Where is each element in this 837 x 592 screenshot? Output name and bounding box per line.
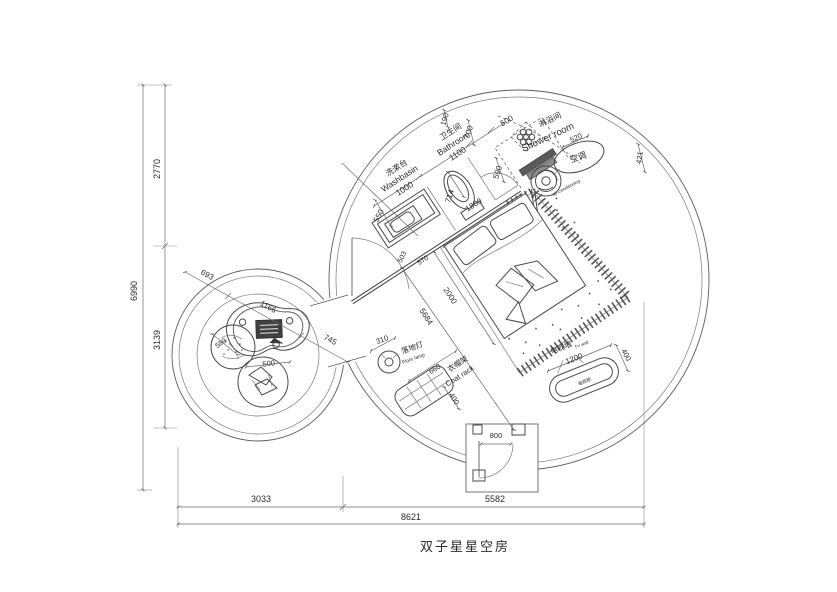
dim-190: 190 xyxy=(438,112,450,127)
label-ac-zh: 空调 xyxy=(568,150,587,165)
corridor xyxy=(307,292,368,369)
floor-plan-sheet: 699027703139303355828621洗漱台Washbasin1000… xyxy=(0,0,837,592)
label-tv-zh: 电视墙 xyxy=(549,338,574,356)
dim-1166: 1166 xyxy=(259,299,279,315)
dim-lower-height: 3139 xyxy=(152,330,162,350)
dimension-lines xyxy=(137,85,644,528)
dim-700: 700 xyxy=(462,124,475,140)
annotation-texts: 699027703139303355828621洗漱台Washbasin1000… xyxy=(129,110,645,522)
dim-tv-400: 400 xyxy=(619,347,633,362)
dim-overall-width: 8621 xyxy=(401,512,421,522)
dim-bottom-right: 5582 xyxy=(485,494,505,504)
dim-660: 660 xyxy=(427,362,442,376)
dim-overall-height: 6990 xyxy=(129,281,139,301)
dim-2000: 2000 xyxy=(441,286,459,306)
dim-rack-400: 400 xyxy=(447,391,461,406)
drawing-title: 双子星星空房 xyxy=(420,539,510,554)
dim-550: 550 xyxy=(372,207,386,223)
dim-589: 589 xyxy=(214,337,228,349)
dim-5684: 5684 xyxy=(417,307,435,327)
dim-693: 693 xyxy=(199,268,216,283)
dim-bottom-left: 3033 xyxy=(251,494,271,504)
dim-503: 503 xyxy=(397,250,409,264)
dim-421: 421 xyxy=(634,151,645,165)
laptop xyxy=(256,320,284,345)
dim-500-shower-door: 500 xyxy=(499,113,516,128)
dim-310: 310 xyxy=(375,333,390,346)
dim-1200: 1200 xyxy=(564,351,584,366)
bedroom-door xyxy=(352,238,409,296)
dim-upper-height: 2770 xyxy=(152,159,162,179)
floor-lamp xyxy=(378,351,400,373)
cup xyxy=(286,317,294,325)
label-tv-en: TV wall xyxy=(574,340,590,350)
dim-800: 800 xyxy=(490,431,503,440)
dim-570: 570 xyxy=(416,255,430,267)
cup xyxy=(239,318,247,326)
dim-500-chair: 500 xyxy=(262,358,276,369)
floor-plan-drawing: 699027703139303355828621洗漱台Washbasin1000… xyxy=(0,0,837,592)
